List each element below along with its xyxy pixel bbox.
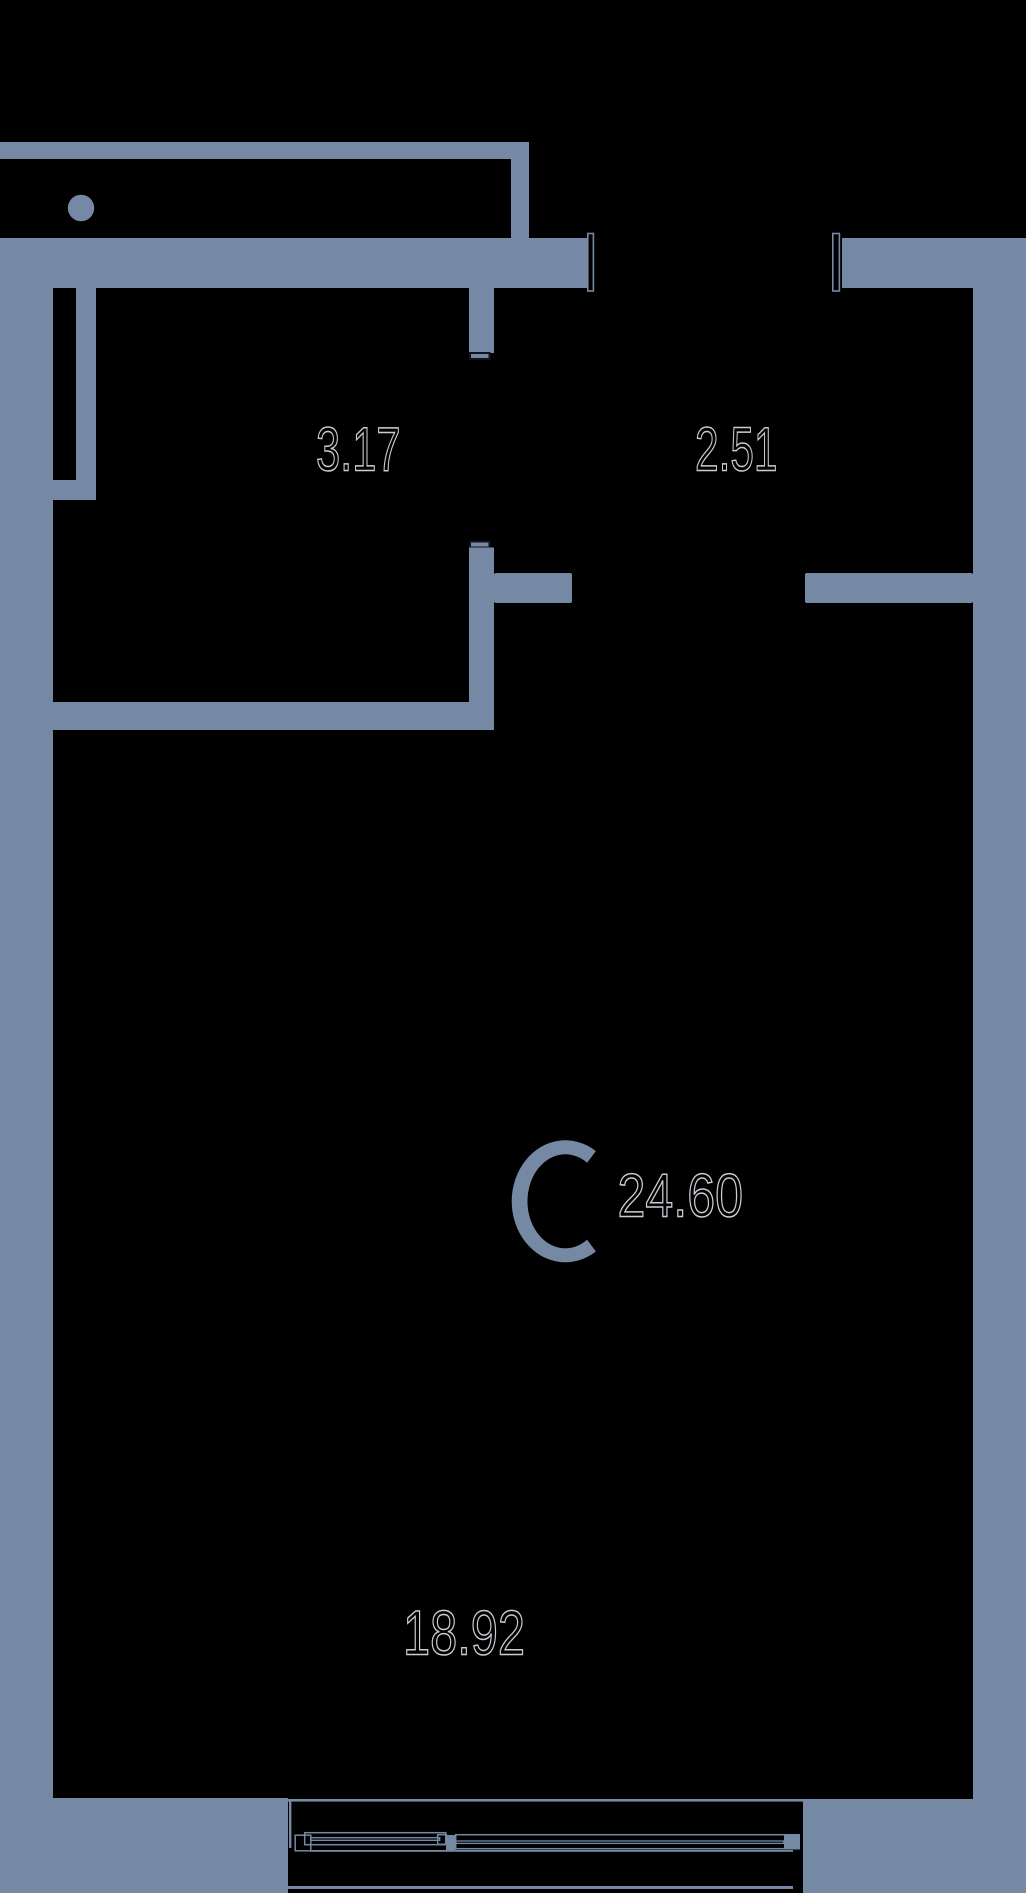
- svg-text:18.92: 18.92: [403, 1599, 525, 1669]
- svg-text:2.51: 2.51: [695, 415, 778, 485]
- svg-text:3.17: 3.17: [316, 415, 401, 485]
- svg-text:24.60: 24.60: [618, 1161, 744, 1230]
